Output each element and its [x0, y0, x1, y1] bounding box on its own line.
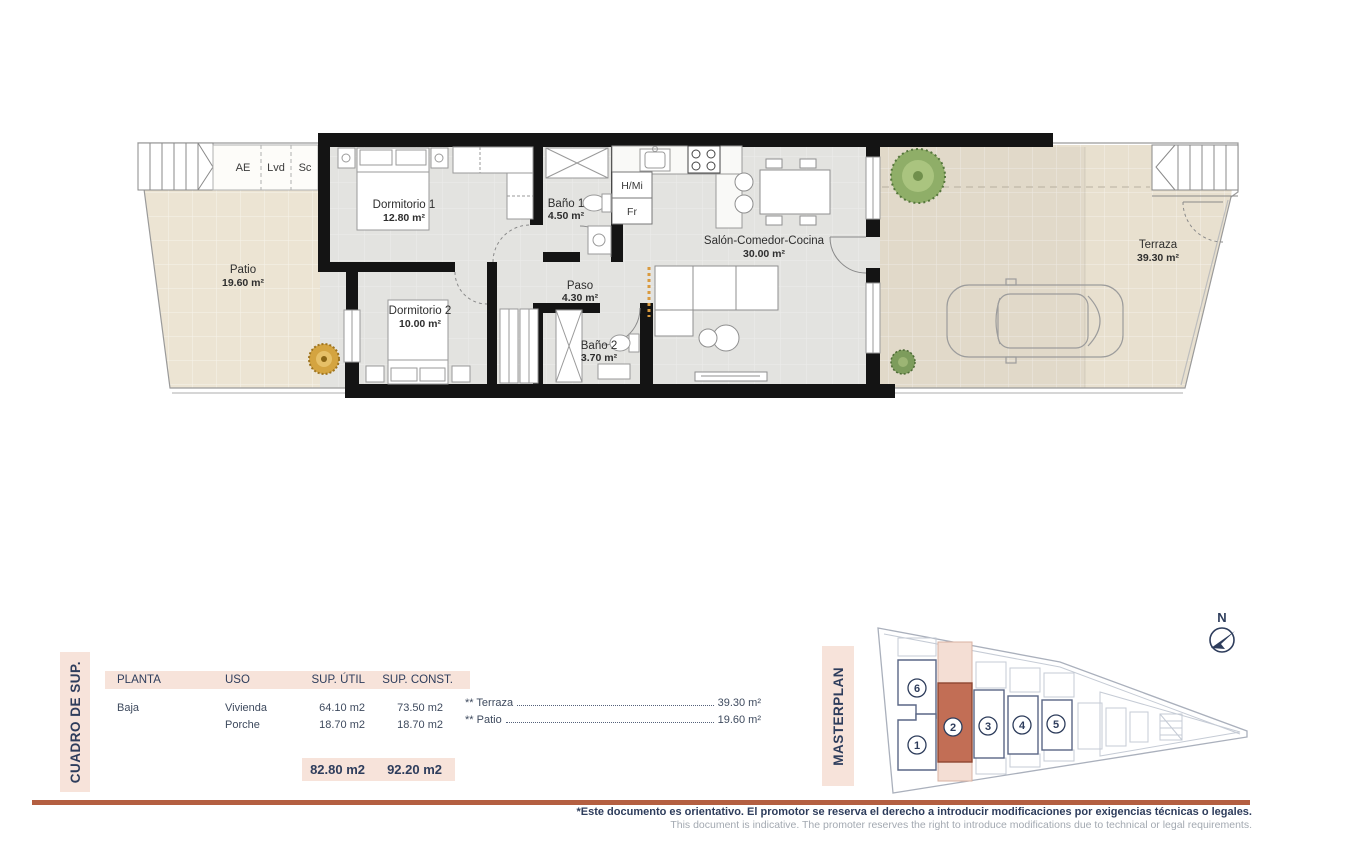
- unit-blocks: [898, 660, 1072, 770]
- cell-sup-util: 18.70 m2: [305, 719, 365, 731]
- room-area-patio: 19.60 m²: [222, 277, 265, 289]
- label-fr: Fr: [627, 206, 637, 218]
- brochure-page: AE Lvd Sc: [0, 0, 1360, 850]
- unit-2-highlight: [938, 642, 972, 781]
- unit-number-2: 2: [944, 718, 962, 736]
- svg-text:3: 3: [985, 721, 991, 733]
- room-area-terraza: 39.30 m²: [1137, 252, 1180, 264]
- label-sc: Sc: [299, 162, 312, 174]
- unit-number-3: 3: [979, 717, 997, 735]
- room-area-paso: 4.30 m²: [562, 292, 599, 304]
- cell-sup-const: 18.70 m2: [365, 719, 470, 731]
- room-name-bano2: Baño 2: [581, 340, 617, 352]
- summary-table-body: Baja Vivienda 64.10 m2 73.50 m2 Porche 1…: [105, 699, 470, 733]
- room-name-dormitorio2: Dormitorio 2: [389, 305, 452, 317]
- masterplan-side-strip: MASTERPLAN: [822, 646, 854, 786]
- unit-number-6: 6: [908, 679, 926, 697]
- label-ae: AE: [236, 162, 251, 174]
- cell-planta: Baja: [105, 702, 225, 714]
- cell-uso: Vivienda: [225, 702, 305, 714]
- unit-number-1: 1: [908, 736, 926, 754]
- summary-totals: 82.80 m2 92.20 m2: [302, 758, 455, 781]
- tree-small-green: [891, 350, 915, 374]
- room-name-paso: Paso: [567, 280, 593, 292]
- extra-terraza: ** Terraza 39.30 m²: [465, 697, 761, 714]
- header-sup-util: SUP. ÚTIL: [305, 674, 365, 686]
- label-lvd: Lvd: [267, 162, 285, 174]
- cuadro-side-label: CUADRO DE SUP.: [68, 661, 83, 783]
- cell-sup-util: 64.10 m2: [305, 702, 365, 714]
- extra-value: 19.60 m²: [718, 714, 761, 726]
- staircase-left: [138, 143, 213, 190]
- svg-text:4: 4: [1019, 720, 1026, 732]
- dotted-leader: [506, 714, 714, 723]
- staircase-right: [1152, 145, 1238, 196]
- extra-label: ** Patio: [465, 714, 502, 726]
- room-area-dormitorio1: 12.80 m²: [383, 212, 426, 224]
- disclaimer-english: This document is indicative. The promote…: [576, 819, 1252, 832]
- extra-value: 39.30 m²: [718, 697, 761, 709]
- table-row: Porche 18.70 m2 18.70 m2: [105, 716, 470, 733]
- svg-text:6: 6: [914, 683, 920, 695]
- utility-strip: AE Lvd Sc: [213, 145, 318, 190]
- tree-yellow: [309, 344, 339, 374]
- cuadro-side-strip: CUADRO DE SUP.: [60, 652, 90, 792]
- dotted-leader: [517, 697, 713, 706]
- svg-text:5: 5: [1053, 719, 1059, 731]
- room-name-dormitorio1: Dormitorio 1: [373, 199, 436, 211]
- unit-number-5: 5: [1047, 715, 1065, 733]
- room-area-dormitorio2: 10.00 m²: [399, 318, 442, 330]
- room-area-bano2: 3.70 m²: [581, 352, 618, 364]
- svg-text:2: 2: [950, 722, 956, 734]
- extras-list: ** Terraza 39.30 m² ** Patio 19.60 m²: [465, 697, 761, 731]
- extra-label: ** Terraza: [465, 697, 513, 709]
- header-planta: PLANTA: [105, 674, 225, 686]
- tree-large-green: [891, 149, 945, 203]
- room-area-bano1: 4.50 m²: [548, 210, 585, 222]
- cell-sup-const: 73.50 m2: [365, 702, 470, 714]
- room-area-salon: 30.00 m²: [743, 248, 786, 260]
- masterplan-canvas: 6 1 2 3 4 5 N: [860, 598, 1270, 803]
- unit-number-4: 4: [1013, 716, 1031, 734]
- north-label: N: [1217, 610, 1226, 625]
- cell-uso: Porche: [225, 719, 305, 731]
- room-name-salon: Salón-Comedor-Cocina: [704, 235, 825, 247]
- summary-table-header: PLANTA USO SUP. ÚTIL SUP. CONST.: [105, 671, 470, 689]
- room-name-terraza: Terraza: [1139, 239, 1178, 251]
- room-name-bano1: Baño 1: [548, 198, 584, 210]
- header-uso: USO: [225, 674, 305, 686]
- north-indicator: N: [1210, 610, 1235, 652]
- disclaimer-spanish: *Este documento es orientativo. El promo…: [576, 806, 1252, 819]
- label-hmi: H/Mi: [621, 180, 643, 192]
- floor-plan-canvas: AE Lvd Sc: [0, 0, 1360, 560]
- room-name-patio: Patio: [230, 264, 256, 276]
- masterplan-side-label: MASTERPLAN: [831, 667, 846, 766]
- extra-patio: ** Patio 19.60 m²: [465, 714, 761, 731]
- disclaimer: *Este documento es orientativo. El promo…: [576, 806, 1252, 832]
- total-sup-const: 92.20 m2: [365, 762, 455, 777]
- table-row: Baja Vivienda 64.10 m2 73.50 m2: [105, 699, 470, 716]
- total-sup-util: 82.80 m2: [302, 762, 365, 777]
- svg-text:1: 1: [914, 740, 920, 752]
- footer-accent-bar: [32, 800, 1250, 805]
- header-sup-const: SUP. CONST.: [365, 674, 470, 686]
